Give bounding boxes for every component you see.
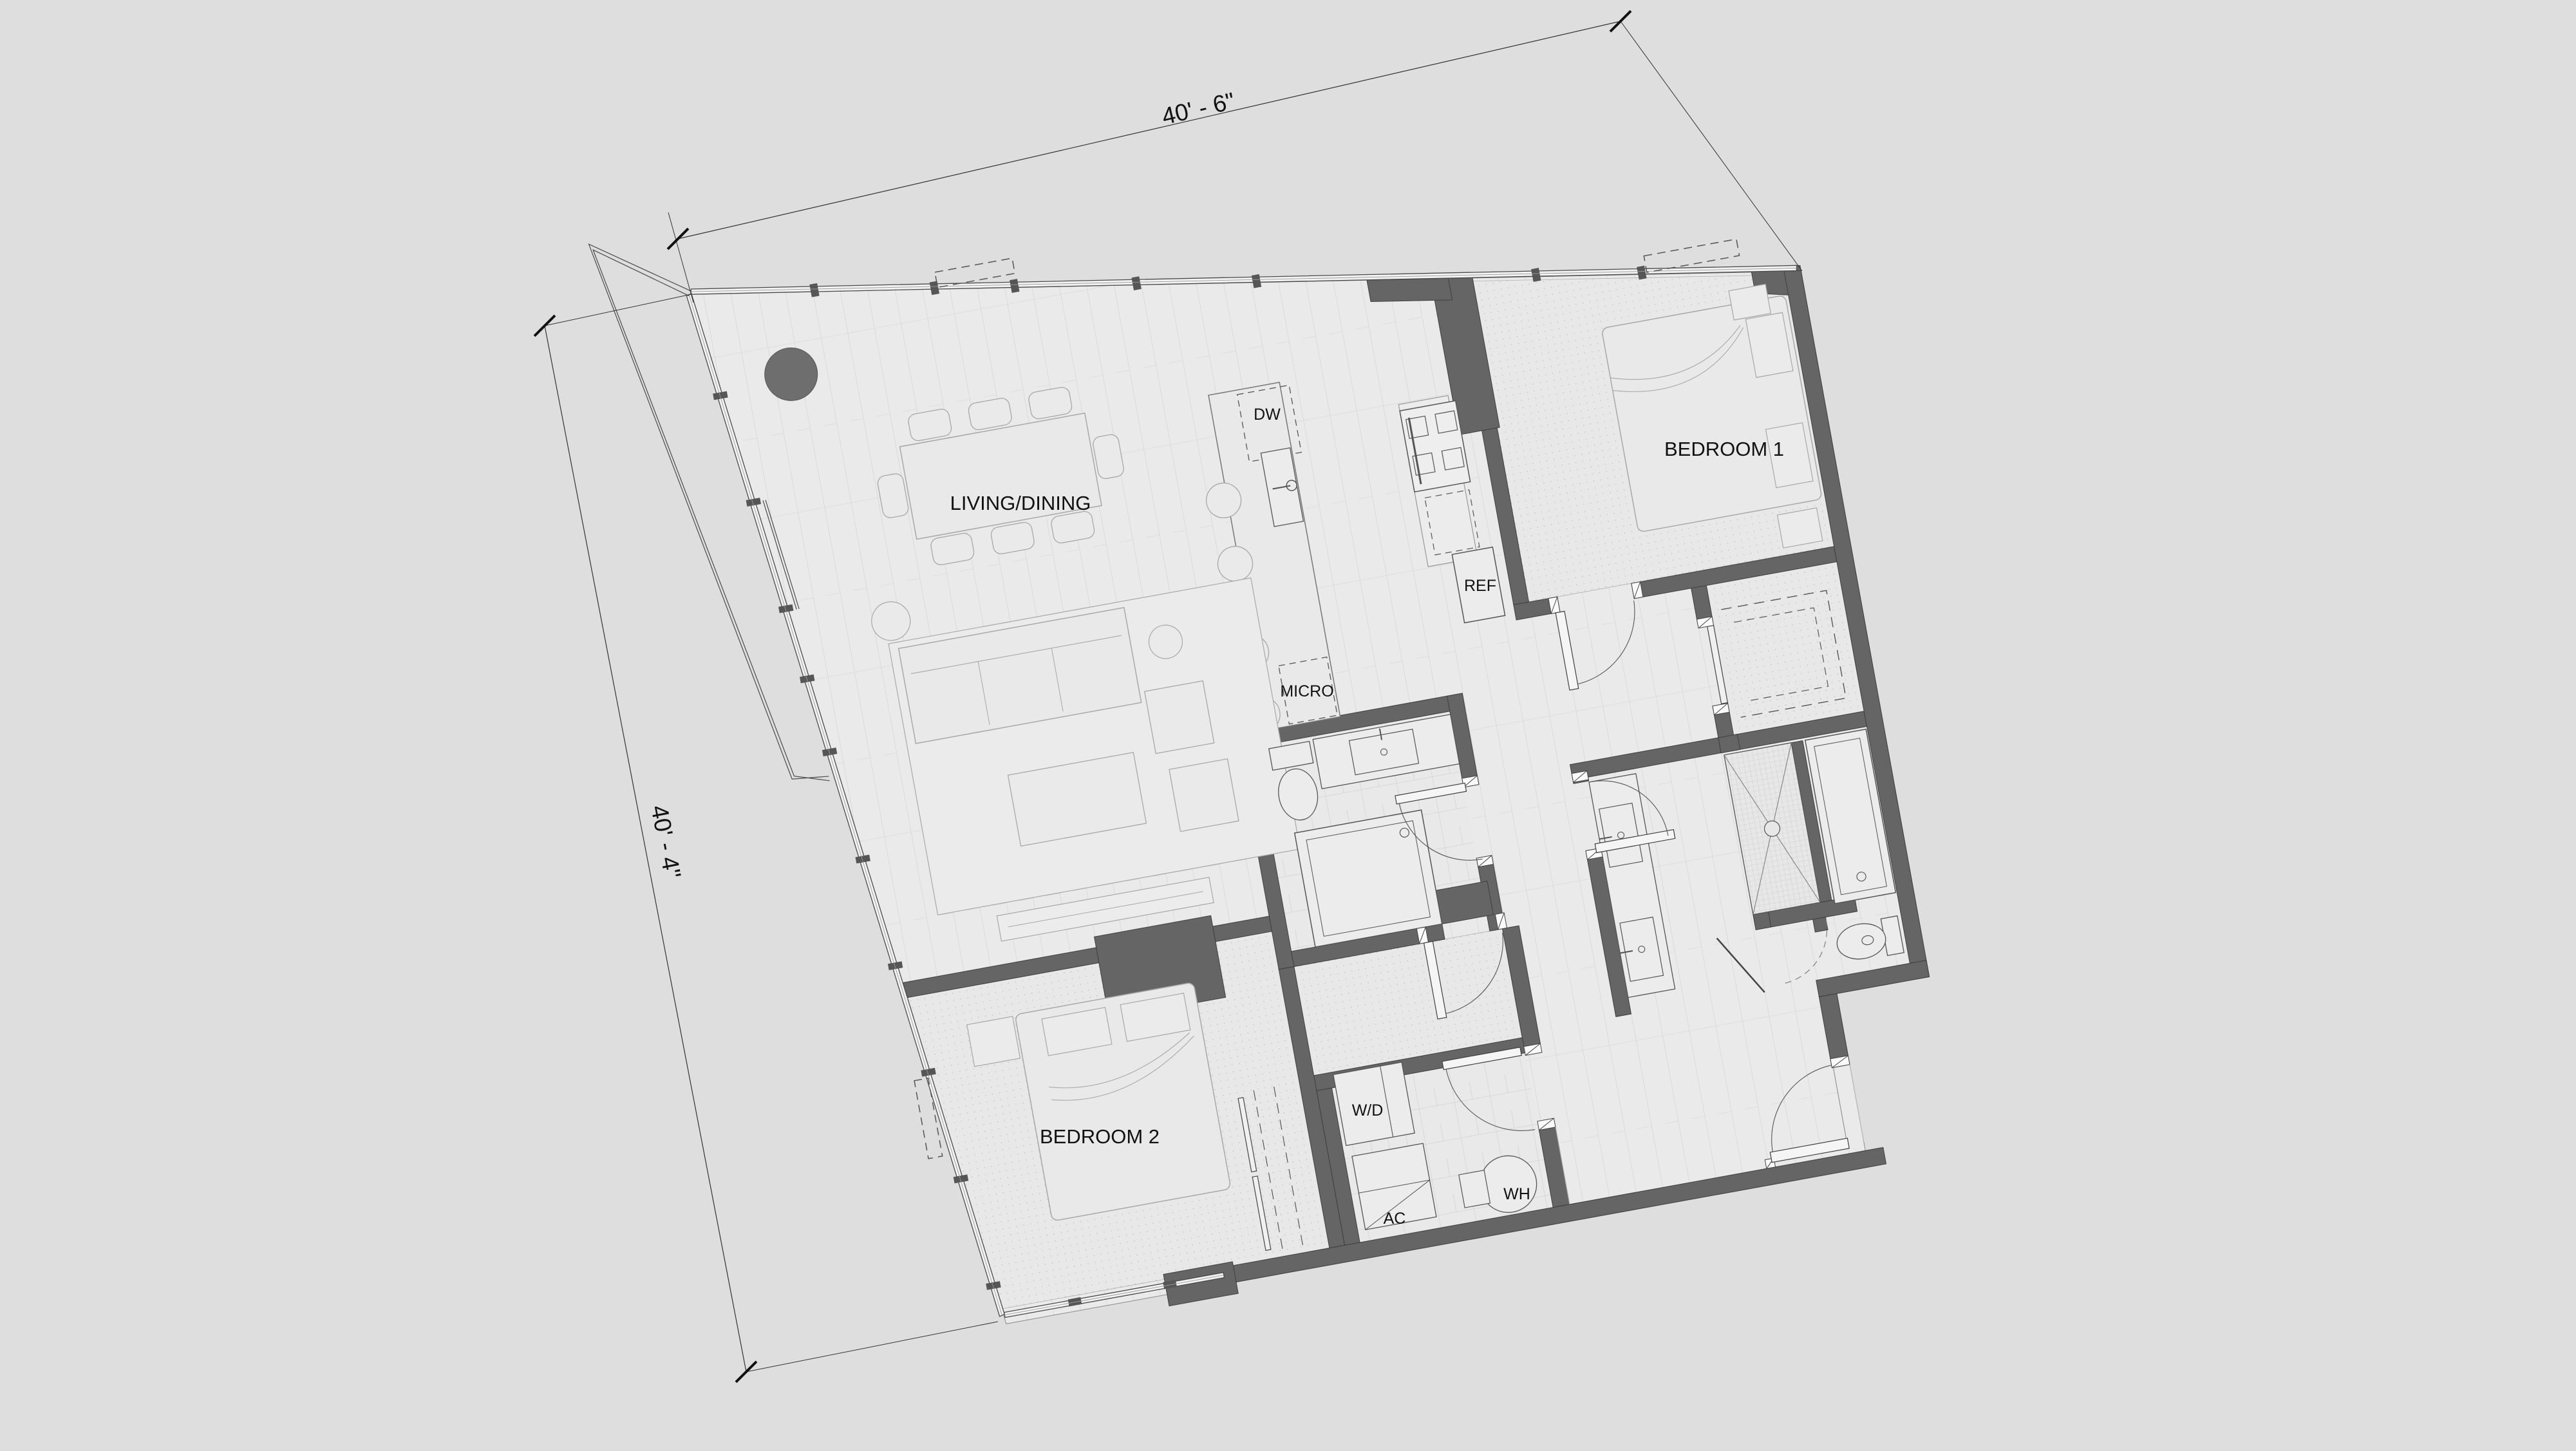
svg-text:BEDROOM 1: BEDROOM 1 [1664, 438, 1784, 460]
svg-text:BEDROOM 2: BEDROOM 2 [1040, 1125, 1160, 1148]
svg-text:REF: REF [1464, 577, 1496, 595]
svg-text:DW: DW [1254, 406, 1281, 424]
svg-text:WH: WH [1503, 1185, 1530, 1203]
svg-text:W/D: W/D [1352, 1101, 1384, 1119]
svg-text:LIVING/DINING: LIVING/DINING [950, 492, 1091, 514]
svg-text:AC: AC [1384, 1210, 1406, 1228]
svg-text:MICRO: MICRO [1280, 682, 1333, 700]
